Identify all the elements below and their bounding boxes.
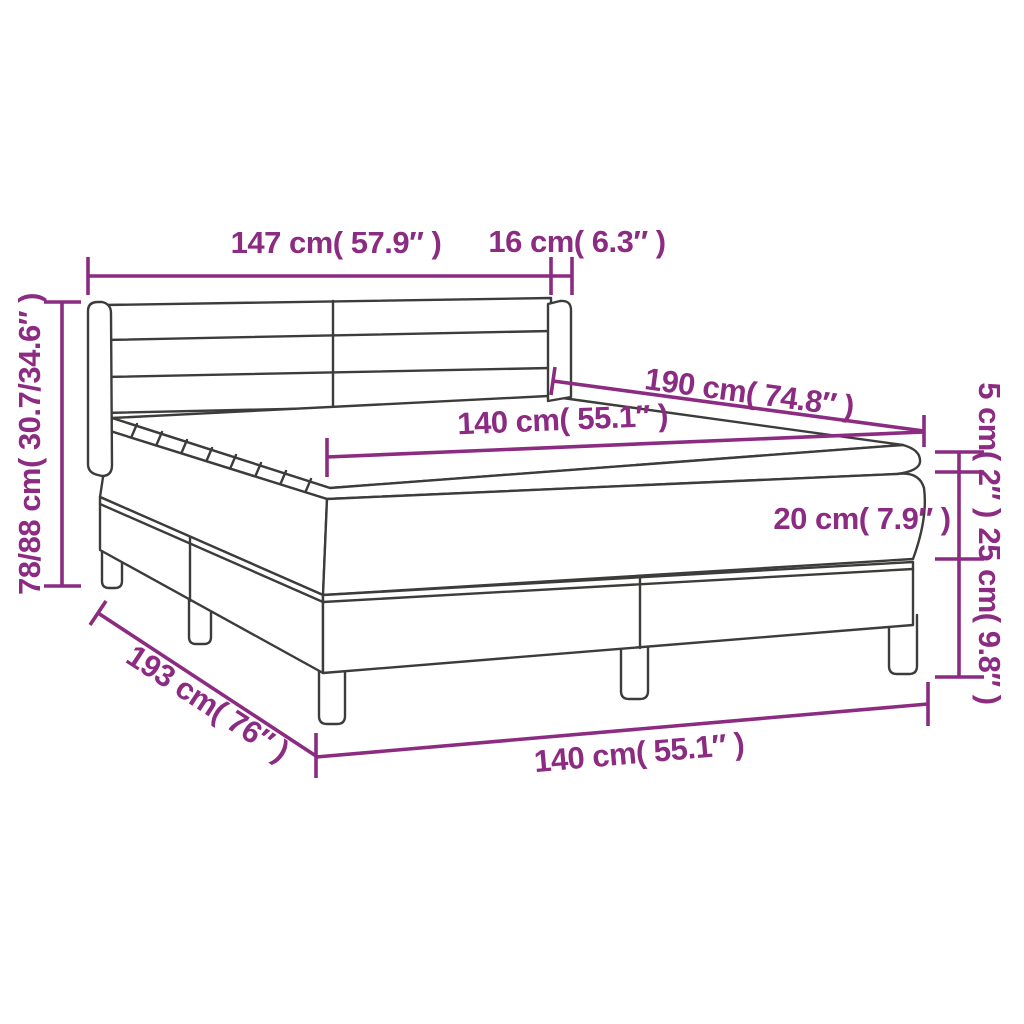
label-headboard-width: 147 cm( 57.9″ )	[231, 225, 442, 260]
label-topper-height: 5 cm( 2″ )	[972, 382, 1007, 518]
diagram-canvas: 147 cm( 57.9″ ) 16 cm( 6.3″ ) 78/88 cm( …	[0, 0, 1024, 1024]
label-mattress-height: 20 cm( 7.9″ )	[773, 501, 950, 536]
headboard-left-wing	[88, 302, 112, 476]
bed-dimension-diagram: 147 cm( 57.9″ ) 16 cm( 6.3″ ) 78/88 cm( …	[0, 0, 1024, 1024]
dim-tick-base-length	[90, 601, 106, 625]
label-base-length: 193 cm( 76″ )	[120, 638, 295, 769]
label-headboard-side-depth: 16 cm( 6.3″ )	[488, 224, 665, 259]
label-base-height: 25 cm( 9.8″ )	[972, 527, 1007, 704]
label-total-height: 78/88 cm( 30.7/34.6″ )	[12, 293, 47, 595]
